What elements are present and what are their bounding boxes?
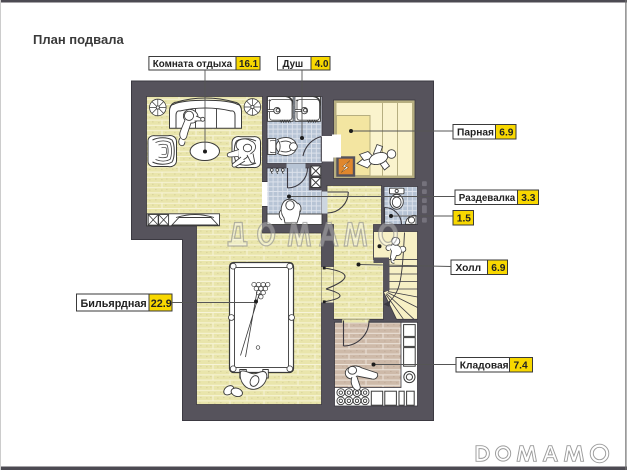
svg-text:16.1: 16.1 <box>239 59 259 70</box>
svg-text:Бильярдная: Бильярдная <box>81 298 147 310</box>
svg-text:1.5: 1.5 <box>457 213 471 224</box>
svg-text:6.9: 6.9 <box>499 127 513 138</box>
svg-text:Комната отдыха: Комната отдыха <box>153 59 233 70</box>
svg-text:Раздевалка: Раздевалка <box>459 193 516 204</box>
svg-text:4.0: 4.0 <box>315 59 329 70</box>
svg-text:Холл: Холл <box>456 263 482 274</box>
svg-text:Кладовая: Кладовая <box>460 360 509 371</box>
svg-text:22.9: 22.9 <box>151 298 172 310</box>
svg-text:3.3: 3.3 <box>521 193 535 204</box>
svg-text:7.4: 7.4 <box>514 360 528 371</box>
svg-text:План подвала: План подвала <box>33 32 124 47</box>
svg-text:Парная: Парная <box>457 127 494 138</box>
svg-text:Душ: Душ <box>283 59 304 70</box>
svg-text:6.9: 6.9 <box>491 263 505 274</box>
